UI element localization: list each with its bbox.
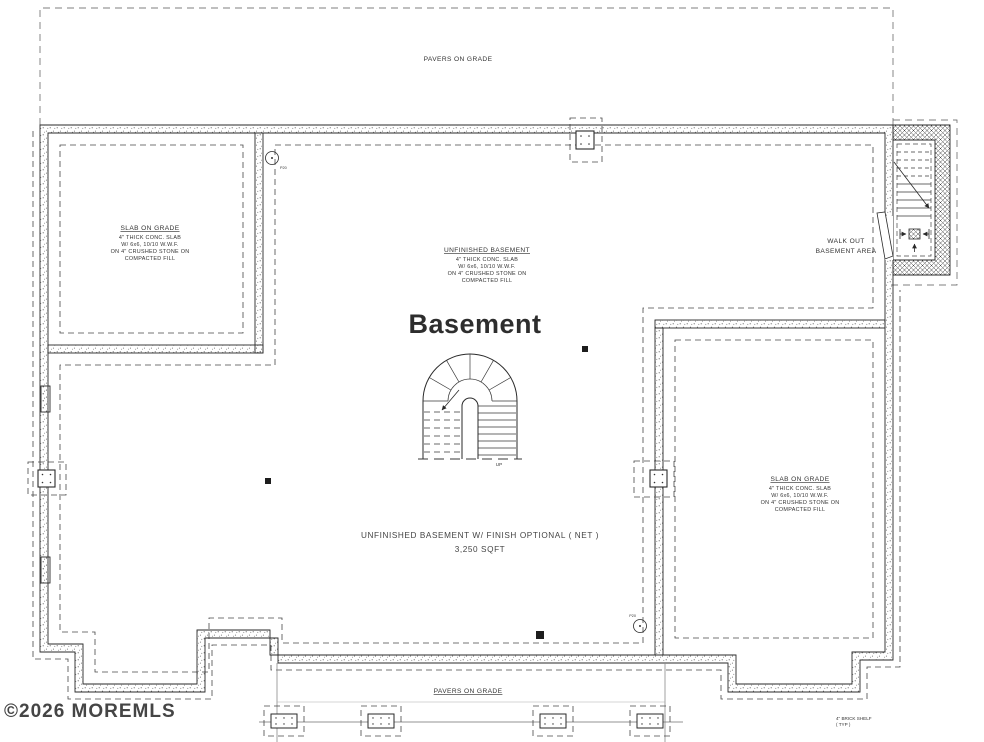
- unfinished-basement-note: UNFINISHED BASEMENT 4" THICK CONC. SLAB …: [444, 247, 530, 284]
- upperleft-room-wall-horizontal: [48, 345, 263, 353]
- pier-footing: [630, 706, 670, 736]
- slab-note-right-line: COMPACTED FILL: [775, 507, 826, 513]
- unfinished-note-line: ON 4" CRUSHED STONE ON: [448, 271, 527, 277]
- slab-note-right-line: ON 4" CRUSHED STONE ON: [761, 500, 840, 506]
- slab-note-left-line: ON 4" CRUSHED STONE ON: [111, 249, 190, 255]
- slab-note-right-line: 4" THICK CONC. SLAB: [769, 486, 831, 492]
- column-marker-upper: [582, 346, 588, 352]
- bottom-pavers-area: PAVERS ON GRADE: [259, 663, 683, 742]
- pier-footing: [361, 706, 401, 736]
- net-area-line2: 3,250 SQFT: [455, 545, 506, 554]
- pier-tag-bottom-label: P20: [629, 614, 636, 618]
- pier-footing: [533, 706, 573, 736]
- unfinished-note-line: 4" THICK CONC. SLAB: [456, 257, 518, 263]
- unfinished-note-line: COMPACTED FILL: [462, 278, 513, 284]
- brick-shelf-note: 4" BRICK SHELF ( TYP ): [836, 716, 872, 727]
- brick-shelf-line1: 4" BRICK SHELF: [836, 716, 872, 721]
- slab-note-left-line: 4" THICK CONC. SLAB: [119, 235, 181, 241]
- stair-center-newel: [462, 398, 478, 459]
- unfinished-note-line: W/ 6x6, 10/10 W.W.F.: [458, 264, 516, 270]
- left-wall-opening-upper: [41, 386, 50, 412]
- pavers-top-label: PAVERS ON GRADE: [424, 56, 493, 63]
- pavers-top-outline: [40, 8, 893, 125]
- walkout-stairwell: WALK OUT BASEMENT AREA: [816, 125, 950, 275]
- slab-note-right-line: W/ 6x6, 10/10 W.W.F.: [771, 493, 829, 499]
- pavers-bottom-label: PAVERS ON GRADE: [434, 688, 503, 695]
- slab-note-right-title: SLAB ON GRADE: [770, 476, 829, 483]
- pier-footing: [264, 706, 304, 736]
- slab-note-left-title: SLAB ON GRADE: [120, 225, 179, 232]
- pier-tag-top-label: P20: [280, 166, 287, 170]
- stair-up-label: UP: [496, 462, 502, 467]
- upperleft-room-wall-vertical: [255, 133, 263, 353]
- top-wall-pier: [576, 131, 594, 149]
- pavers-top-area: PAVERS ON GRADE: [40, 8, 893, 125]
- slab-note-left: SLAB ON GRADE 4" THICK CONC. SLAB W/ 6x6…: [111, 225, 190, 262]
- interior-wall-pier: [650, 470, 667, 487]
- unfinished-note-title: UNFINISHED BASEMENT: [444, 247, 530, 254]
- watermark: ©2026 MOREMLS: [4, 701, 176, 722]
- pavers-side-lines: [277, 663, 665, 742]
- slab-note-right: SLAB ON GRADE 4" THICK CONC. SLAB W/ 6x6…: [761, 476, 840, 513]
- wall-piers: [28, 118, 674, 639]
- pier-footings: [264, 706, 670, 736]
- slab-note-left-line: COMPACTED FILL: [125, 256, 176, 262]
- right-room-wall-horizontal: [655, 320, 885, 328]
- walkout-label-1: WALK OUT: [827, 238, 864, 245]
- right-room-wall-vertical: [655, 328, 663, 655]
- floorplan-svg: PAVERS ON GRADE P20: [0, 0, 984, 742]
- left-wall-pier: [38, 470, 55, 487]
- center-staircase: UP: [418, 354, 522, 467]
- walkout-label-2: BASEMENT AREA: [816, 248, 877, 255]
- left-wall-opening-lower: [41, 557, 50, 583]
- basement-title: Basement: [408, 309, 541, 339]
- bottom-wall-pier: [536, 631, 544, 639]
- floorplan-page: PAVERS ON GRADE P20: [0, 0, 984, 742]
- slab-note-left-line: W/ 6x6, 10/10 W.W.F.: [121, 242, 179, 248]
- net-area-line1: UNFINISHED BASEMENT W/ FINISH OPTIONAL (…: [361, 531, 599, 540]
- brick-shelf-line2: ( TYP ): [836, 722, 851, 727]
- column-marker-lower: [265, 478, 271, 484]
